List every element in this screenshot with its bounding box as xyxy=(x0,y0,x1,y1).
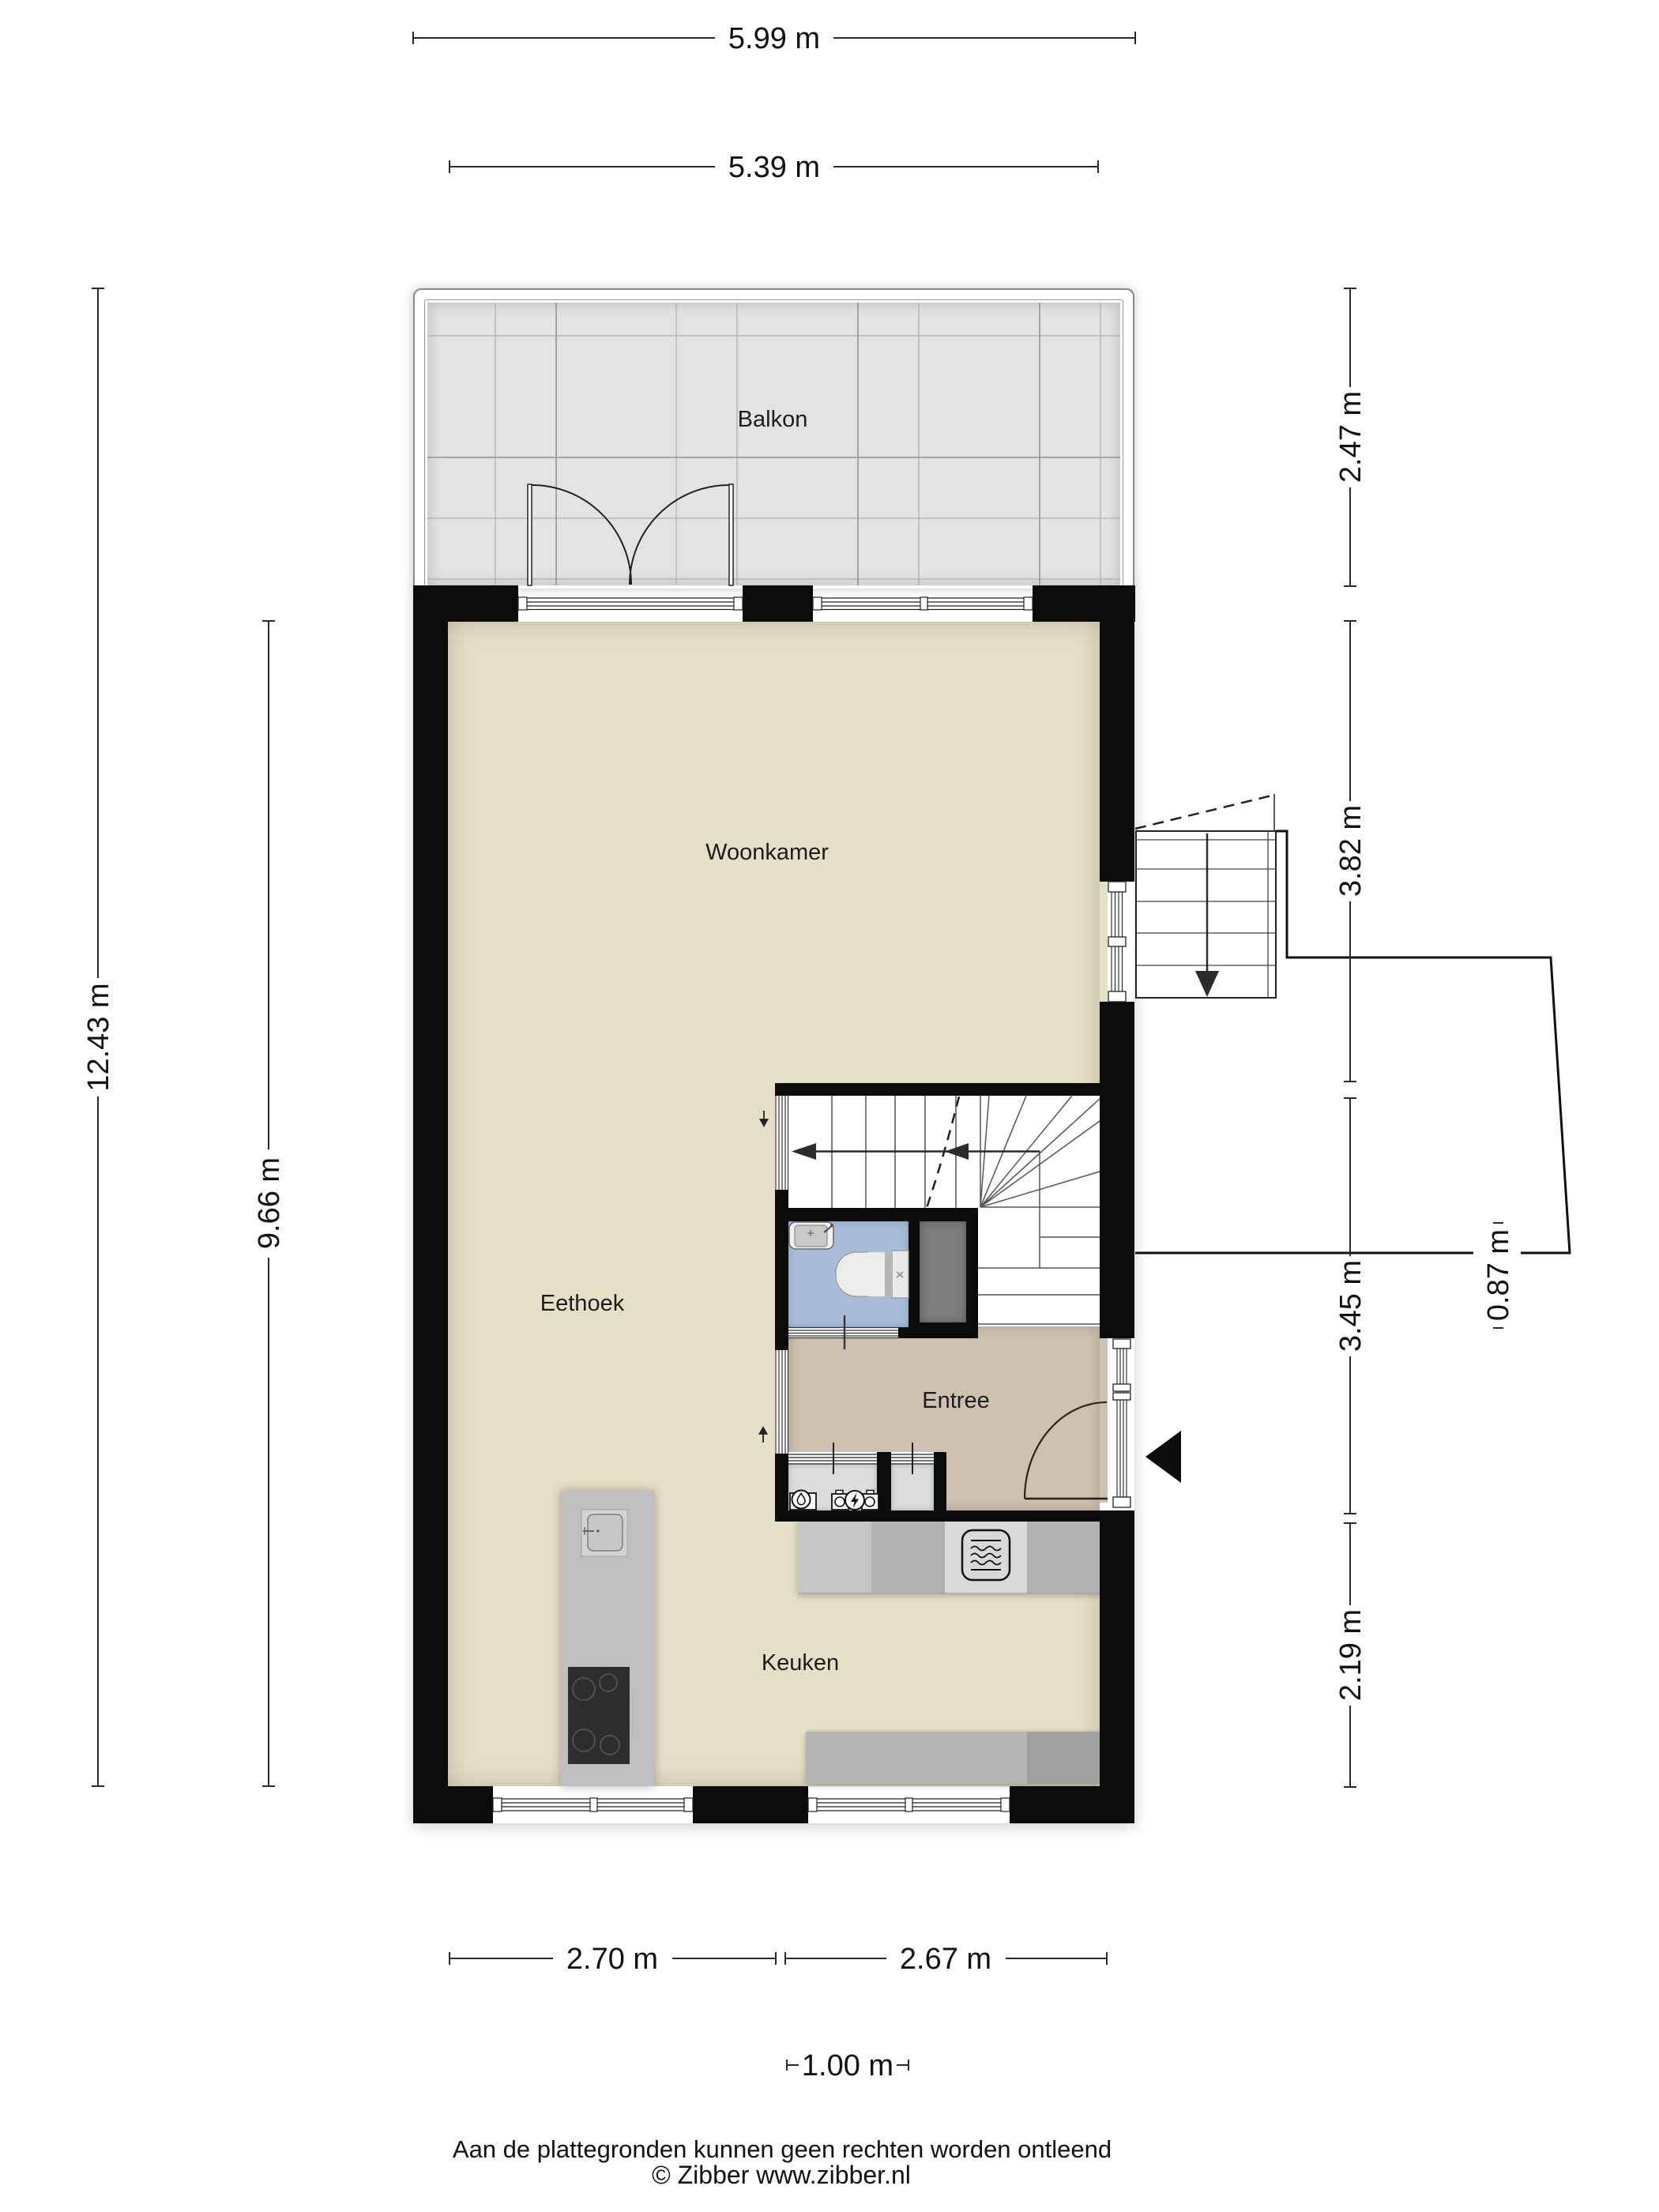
svg-text:0.87 m: 0.87 m xyxy=(1482,1229,1515,1321)
svg-text:Balkon: Balkon xyxy=(738,407,808,432)
svg-text:2.67 m: 2.67 m xyxy=(900,1943,991,1976)
svg-text:Eethoek: Eethoek xyxy=(540,1291,625,1316)
svg-text:Aan de plattegronden kunnen ge: Aan de plattegronden kunnen geen rechten… xyxy=(453,2135,1112,2163)
svg-text:2.47 m: 2.47 m xyxy=(1334,391,1367,483)
svg-text:© Zibber www.zibber.nl: © Zibber www.zibber.nl xyxy=(652,2161,911,2189)
svg-text:3.45 m: 3.45 m xyxy=(1334,1260,1367,1352)
svg-text:12.43 m: 12.43 m xyxy=(82,983,115,1091)
svg-text:1.00 m: 1.00 m xyxy=(802,2049,893,2082)
svg-text:Woonkamer: Woonkamer xyxy=(705,840,829,865)
svg-text:5.99 m: 5.99 m xyxy=(728,22,820,55)
svg-text:2.19 m: 2.19 m xyxy=(1334,1609,1367,1701)
svg-text:3.82 m: 3.82 m xyxy=(1334,805,1367,897)
svg-text:Entree: Entree xyxy=(922,1388,989,1413)
svg-text:5.39 m: 5.39 m xyxy=(728,151,820,184)
svg-text:Keuken: Keuken xyxy=(762,1650,839,1676)
svg-text:2.70 m: 2.70 m xyxy=(566,1943,658,1976)
svg-text:9.66 m: 9.66 m xyxy=(253,1157,286,1249)
